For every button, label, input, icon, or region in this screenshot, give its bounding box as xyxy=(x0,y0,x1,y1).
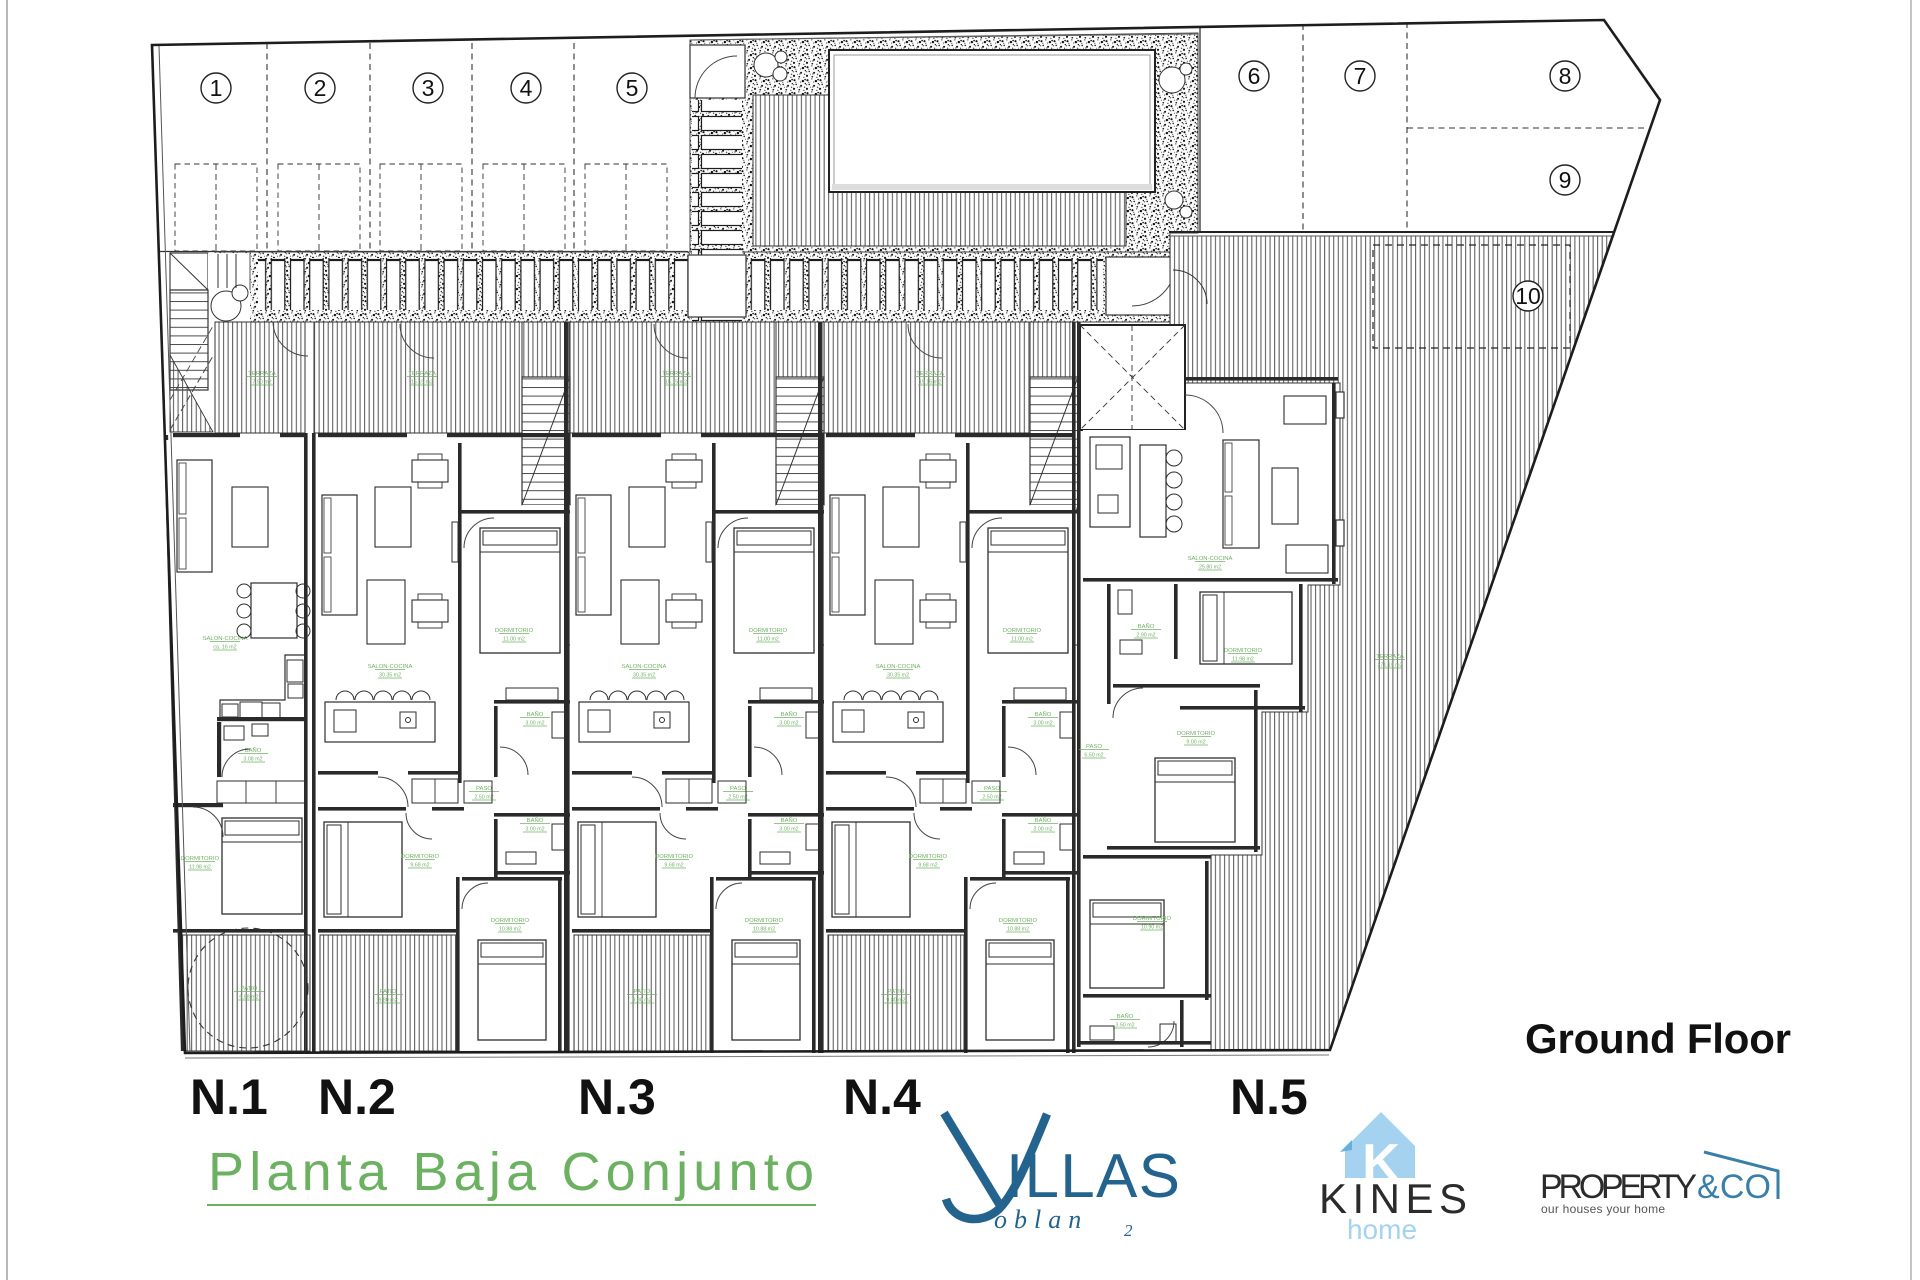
svg-text:SALON-COCINA: SALON-COCINA xyxy=(622,664,667,670)
svg-text:PASO: PASO xyxy=(1086,744,1102,750)
svg-text:PASO: PASO xyxy=(984,786,1000,792)
svg-text:3.00 m2: 3.00 m2 xyxy=(1033,721,1052,727)
svg-text:DORMITORIO: DORMITORIO xyxy=(401,854,440,860)
svg-text:SALON-COCINA: SALON-COCINA xyxy=(1188,556,1233,562)
svg-text:15.15 m2: 15.15 m2 xyxy=(411,380,433,386)
svg-text:9.68 m2: 9.68 m2 xyxy=(410,863,429,869)
svg-text:2: 2 xyxy=(1124,1221,1133,1240)
svg-text:Ground Floor: Ground Floor xyxy=(1525,1015,1791,1062)
svg-text:PATIO: PATIO xyxy=(241,986,258,992)
svg-text:9: 9 xyxy=(1559,167,1572,193)
svg-text:BAÑO: BAÑO xyxy=(1035,817,1052,824)
svg-text:PATIO: PATIO xyxy=(634,989,651,995)
svg-text:2.90 m2: 2.90 m2 xyxy=(1136,633,1155,639)
svg-text:BAÑO: BAÑO xyxy=(1035,711,1052,718)
svg-text:BAÑO: BAÑO xyxy=(1117,1013,1134,1020)
svg-text:TERRAZA: TERRAZA xyxy=(916,371,944,377)
svg-text:11.00 m2: 11.00 m2 xyxy=(1011,637,1033,643)
svg-text:TERRAZA: TERRAZA xyxy=(1376,654,1404,660)
svg-text:4: 4 xyxy=(520,75,533,101)
svg-text:PROPERTY: PROPERTY xyxy=(1540,1168,1697,1206)
svg-text:30.35 m2: 30.35 m2 xyxy=(633,673,655,679)
svg-text:3.00 m2: 3.00 m2 xyxy=(1033,827,1052,833)
svg-text:30.35 m2: 30.35 m2 xyxy=(379,673,401,679)
svg-text:home: home xyxy=(1347,1214,1417,1245)
svg-text:oblan: oblan xyxy=(994,1205,1088,1234)
svg-text:N.4: N.4 xyxy=(843,1069,921,1125)
svg-text:9.80 m2: 9.80 m2 xyxy=(886,998,905,1004)
svg-text:25.80 m2: 25.80 m2 xyxy=(1199,565,1221,571)
svg-text:&CO: &CO xyxy=(1697,1168,1771,1206)
svg-text:SALON-COCINA: SALON-COCINA xyxy=(876,664,921,670)
svg-text:11.98 m2: 11.98 m2 xyxy=(189,865,211,871)
svg-text:3.00 m2: 3.00 m2 xyxy=(525,721,544,727)
svg-text:DORMITORIO: DORMITORIO xyxy=(749,628,788,634)
svg-text:BAÑO: BAÑO xyxy=(781,711,798,718)
svg-text:BAÑO: BAÑO xyxy=(1138,623,1155,630)
svg-text:2.50 m2: 2.50 m2 xyxy=(728,795,747,801)
svg-text:DORMITORIO: DORMITORIO xyxy=(745,918,784,924)
svg-text:ca. 16 m2: ca. 16 m2 xyxy=(213,645,236,651)
svg-text:7.50 m2: 7.50 m2 xyxy=(252,380,271,386)
svg-text:N.1: N.1 xyxy=(190,1069,268,1125)
svg-text:6.88 m2: 6.88 m2 xyxy=(239,995,258,1001)
svg-text:3.08 m2: 3.08 m2 xyxy=(243,757,262,763)
svg-text:DORMITORIO: DORMITORIO xyxy=(1177,731,1216,737)
svg-text:9.68 m2: 9.68 m2 xyxy=(918,863,937,869)
svg-text:TERRAZA: TERRAZA xyxy=(408,371,436,377)
svg-text:TERRAZA: TERRAZA xyxy=(248,371,276,377)
svg-text:BAÑO: BAÑO xyxy=(245,747,262,754)
svg-text:DORMITORIO: DORMITORIO xyxy=(655,854,694,860)
svg-text:PASO: PASO xyxy=(476,786,492,792)
svg-text:5: 5 xyxy=(626,75,639,101)
svg-text:BAÑO: BAÑO xyxy=(781,817,798,824)
svg-text:PATIO: PATIO xyxy=(888,989,905,995)
svg-text:3.00 m2: 3.00 m2 xyxy=(779,827,798,833)
svg-text:15.15 m2: 15.15 m2 xyxy=(919,380,941,386)
svg-text:DORMITORIO: DORMITORIO xyxy=(999,918,1038,924)
svg-text:DORMITORIO: DORMITORIO xyxy=(495,628,534,634)
svg-text:8: 8 xyxy=(1559,63,1572,89)
svg-text:N.5: N.5 xyxy=(1230,1069,1308,1125)
svg-text:6.50 m2: 6.50 m2 xyxy=(1084,753,1103,759)
svg-text:SALON-COCINA: SALON-COCINA xyxy=(368,664,413,670)
svg-text:11.98 m2: 11.98 m2 xyxy=(1232,657,1254,663)
svg-text:3: 3 xyxy=(422,75,435,101)
svg-text:BAÑO: BAÑO xyxy=(527,817,544,824)
svg-text:our houses your home: our houses your home xyxy=(1541,1202,1665,1216)
svg-text:DORMITORIO: DORMITORIO xyxy=(1224,648,1263,654)
svg-text:ILLAS: ILLAS xyxy=(1006,1142,1180,1211)
svg-text:PASO: PASO xyxy=(730,786,746,792)
svg-text:3.00 m2: 3.00 m2 xyxy=(779,721,798,727)
svg-text:11.00 m2: 11.00 m2 xyxy=(757,637,779,643)
svg-text:271.19 m2: 271.19 m2 xyxy=(1377,663,1402,669)
svg-text:9.80 m2: 9.80 m2 xyxy=(632,998,651,1004)
svg-text:30.35 m2: 30.35 m2 xyxy=(887,673,909,679)
svg-text:10.88 m2: 10.88 m2 xyxy=(1007,927,1029,933)
svg-text:TERRAZA: TERRAZA xyxy=(662,371,690,377)
svg-text:1: 1 xyxy=(210,75,223,101)
svg-text:BAÑO: BAÑO xyxy=(527,711,544,718)
svg-text:DORMITORIO: DORMITORIO xyxy=(181,856,220,862)
svg-text:N.3: N.3 xyxy=(578,1069,656,1125)
svg-text:DORMITORIO: DORMITORIO xyxy=(1003,628,1042,634)
svg-text:9.68 m2: 9.68 m2 xyxy=(664,863,683,869)
svg-text:3.50 m2: 3.50 m2 xyxy=(1115,1023,1134,1029)
svg-text:3.00 m2: 3.00 m2 xyxy=(525,827,544,833)
svg-text:2.50 m2: 2.50 m2 xyxy=(982,795,1001,801)
svg-text:10.88 m2: 10.88 m2 xyxy=(499,927,521,933)
svg-text:7: 7 xyxy=(1354,63,1367,89)
svg-text:2.50 m2: 2.50 m2 xyxy=(474,795,493,801)
svg-text:DORMITORIO: DORMITORIO xyxy=(909,854,948,860)
svg-text:9.00 m2: 9.00 m2 xyxy=(1186,740,1205,746)
svg-text:PATIO: PATIO xyxy=(380,989,397,995)
svg-text:9.80 m2: 9.80 m2 xyxy=(378,998,397,1004)
svg-text:2: 2 xyxy=(314,75,327,101)
svg-text:6: 6 xyxy=(1248,63,1261,89)
svg-text:N.2: N.2 xyxy=(318,1069,396,1125)
svg-text:10: 10 xyxy=(1515,283,1541,309)
svg-text:11.00 m2: 11.00 m2 xyxy=(503,637,525,643)
svg-text:15.15 m2: 15.15 m2 xyxy=(665,380,687,386)
svg-text:DORMITORIO: DORMITORIO xyxy=(491,918,530,924)
svg-text:DORMITORIO: DORMITORIO xyxy=(1133,916,1172,922)
svg-text:10.90 m2: 10.90 m2 xyxy=(1141,925,1163,931)
svg-text:10.88 m2: 10.88 m2 xyxy=(753,927,775,933)
